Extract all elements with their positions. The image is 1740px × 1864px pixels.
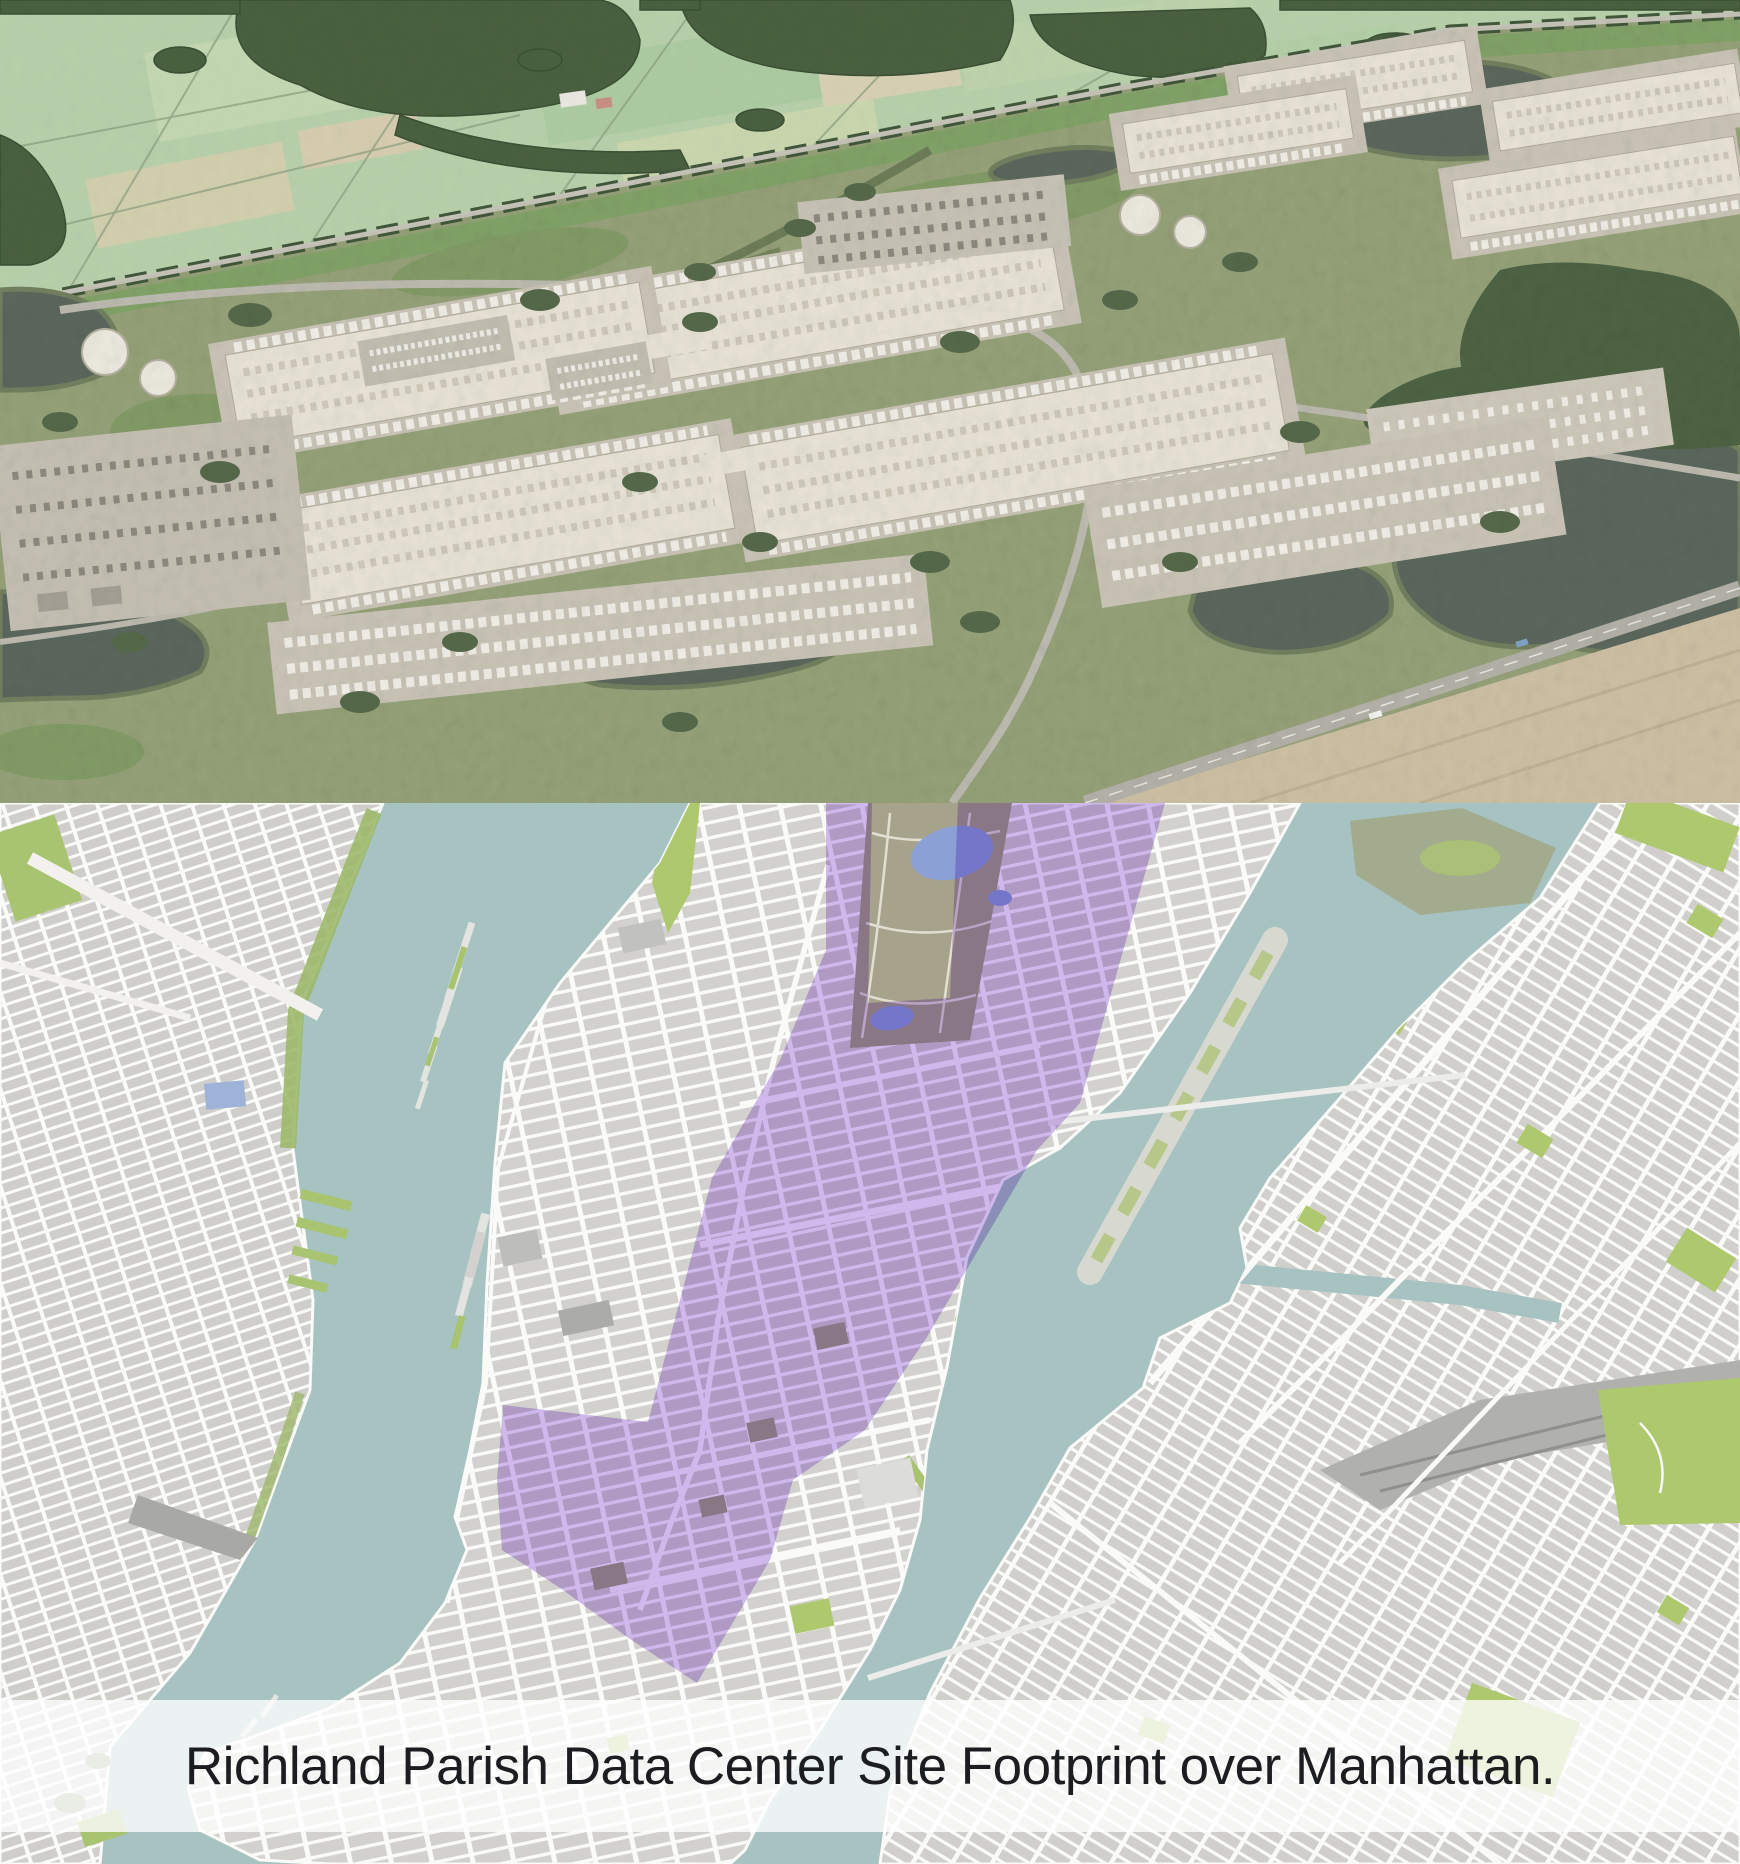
aerial-render-panel bbox=[0, 0, 1740, 803]
caption-bar: Richland Parish Data Center Site Footpri… bbox=[0, 1700, 1740, 1832]
caption-text: Richland Parish Data Center Site Footpri… bbox=[185, 1736, 1555, 1797]
screenshot-page: Richland Parish Data Center Site Footpri… bbox=[0, 0, 1740, 1864]
nj-reservoir bbox=[204, 1080, 246, 1109]
